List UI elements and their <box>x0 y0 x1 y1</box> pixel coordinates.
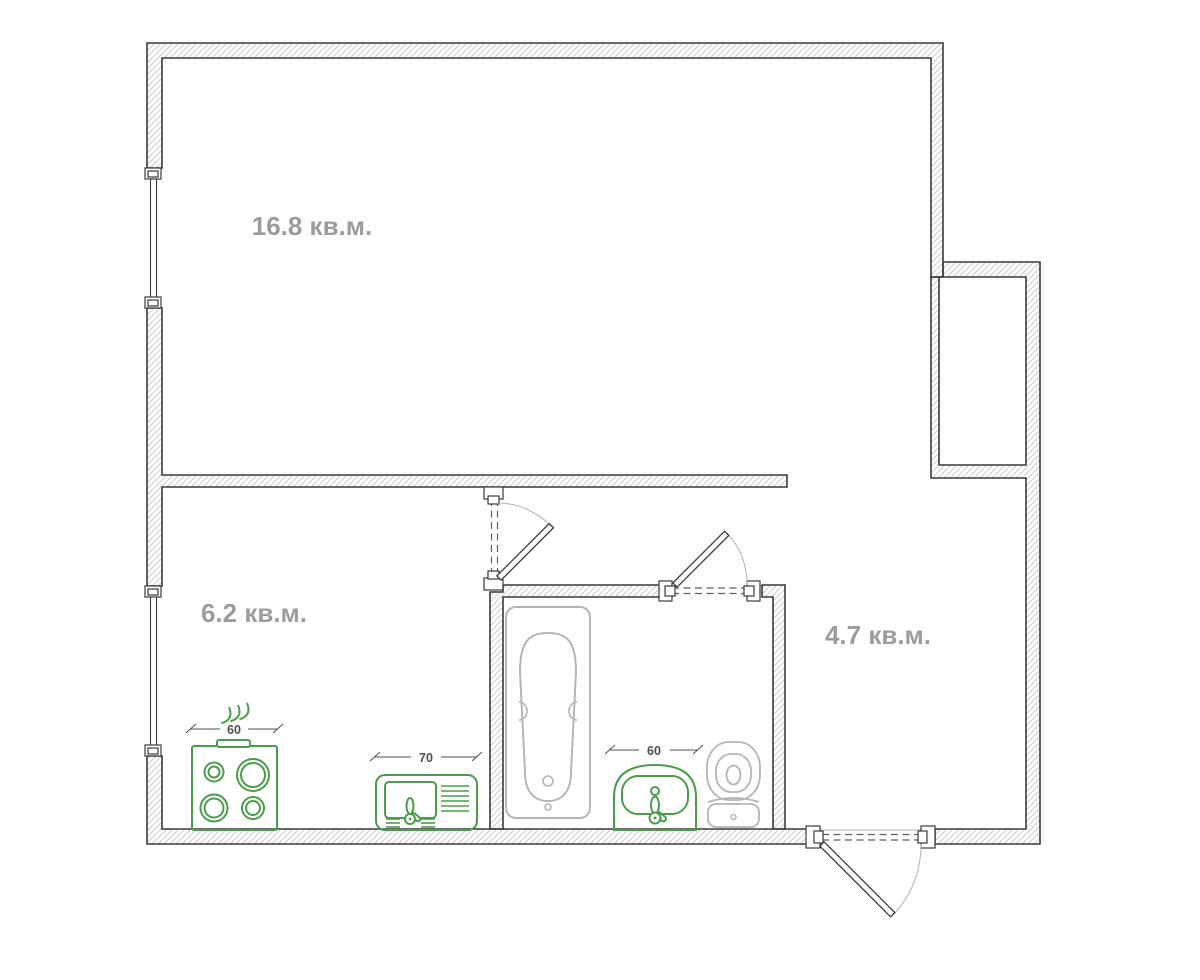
sink-faucet-dot <box>409 818 412 821</box>
kitchen-door <box>484 487 553 590</box>
washbasin <box>614 765 696 830</box>
bathroom-door <box>659 531 760 601</box>
partition-wall-living-kitchen <box>147 308 787 586</box>
floor-plan: 16.8 кв.м. 6.2 кв.м. 4.7 кв.м. 60 70 60 <box>0 0 1200 980</box>
window-frame-cap <box>148 300 158 306</box>
stove-burner <box>209 767 220 778</box>
window-frame-cap <box>148 748 158 754</box>
window-kitchen <box>145 586 161 756</box>
room-label-kitchen: 6.2 кв.м. <box>201 598 307 628</box>
stove-burner <box>246 801 260 815</box>
stove-handle <box>217 740 250 747</box>
dimension-sink-width: 70 <box>370 749 482 765</box>
bathtub <box>506 607 590 818</box>
window-frame-cap <box>148 171 158 177</box>
bathtub-overflow <box>545 804 551 810</box>
room-label-hallway: 4.7 кв.м. <box>825 620 931 650</box>
washbasin-tap-hole <box>651 787 659 795</box>
dimension-text: 70 <box>419 751 433 765</box>
toilet <box>707 742 760 827</box>
door-swing-arc <box>893 844 921 915</box>
door-jamb <box>744 586 754 596</box>
door-swing-arc <box>499 503 551 526</box>
dimension-text: 60 <box>647 744 661 758</box>
outer-wall-top <box>147 43 943 277</box>
door-leaf <box>820 842 895 917</box>
sink-faucet <box>407 798 414 814</box>
bathroom-wall-left-top <box>490 585 661 829</box>
sink-drainboard <box>441 786 469 811</box>
bathtub-drain <box>543 776 553 786</box>
outer-wall-right-niche <box>931 262 1040 844</box>
door-swing-arc <box>727 533 747 585</box>
stove-burner <box>205 763 224 782</box>
stove-burner <box>205 799 224 818</box>
stove-burner <box>241 763 265 787</box>
dimension-text: 60 <box>227 723 241 737</box>
dimension-basin-width: 60 <box>605 742 703 758</box>
dimension-stove-width: 60 <box>186 721 283 737</box>
kitchen-sink <box>376 775 477 830</box>
washbasin-faucet <box>651 797 659 814</box>
entrance-door <box>806 826 935 917</box>
sink-outline <box>376 775 477 830</box>
bathroom-wall-right <box>762 585 785 829</box>
washbasin-faucet-dot <box>654 817 657 820</box>
door-jamb <box>918 831 927 843</box>
floor-plan-page: 16.8 кв.м. 6.2 кв.м. 4.7 кв.м. 60 70 60 <box>0 0 1200 980</box>
door-leaf <box>673 531 729 587</box>
door-jamb <box>814 831 823 843</box>
door-jamb <box>488 496 499 504</box>
wall-structure <box>147 43 1040 844</box>
window-frame-cap <box>148 589 158 595</box>
window-living-room <box>145 168 161 308</box>
room-label-living: 16.8 кв.м. <box>252 211 373 241</box>
toilet-tank <box>708 804 759 827</box>
door-leaf <box>497 524 554 581</box>
door-jamb <box>665 586 675 596</box>
